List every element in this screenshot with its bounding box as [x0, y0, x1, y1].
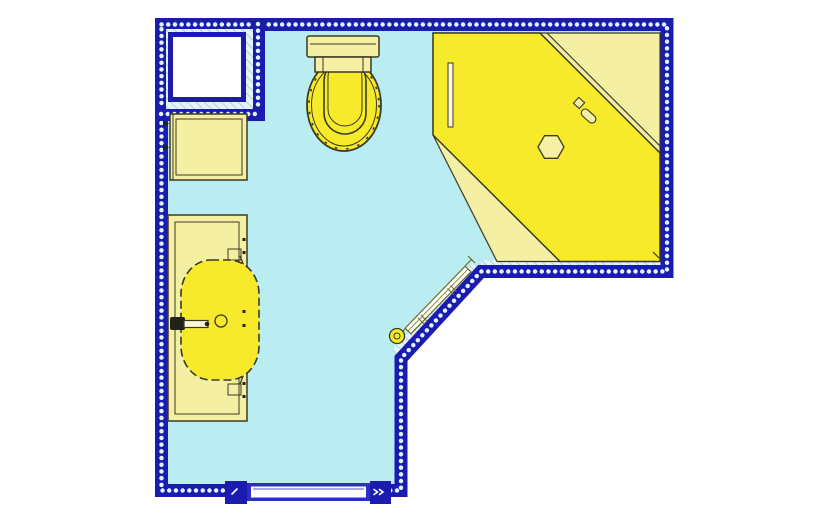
wall-cabinet — [163, 114, 247, 180]
shaft-void — [173, 37, 241, 97]
door-jamb-right — [370, 481, 391, 504]
toilet-cistern — [307, 36, 379, 57]
vanity-sink — [168, 215, 259, 421]
entry-door — [225, 481, 391, 504]
shower-drain — [538, 136, 564, 159]
faucet-handle — [170, 317, 185, 330]
cabinet-body — [170, 114, 247, 180]
door-panel — [251, 487, 366, 498]
faucet-tip — [205, 322, 210, 327]
floor-plan-canvas — [0, 0, 830, 520]
shower-glass-edge — [448, 63, 453, 127]
radiator-valve — [390, 329, 405, 344]
faucet-spout — [184, 321, 208, 328]
duct-shaft — [155, 18, 265, 121]
door-jamb-left — [225, 481, 247, 504]
bathroom-floor-plan — [0, 0, 830, 520]
toilet — [307, 36, 381, 151]
